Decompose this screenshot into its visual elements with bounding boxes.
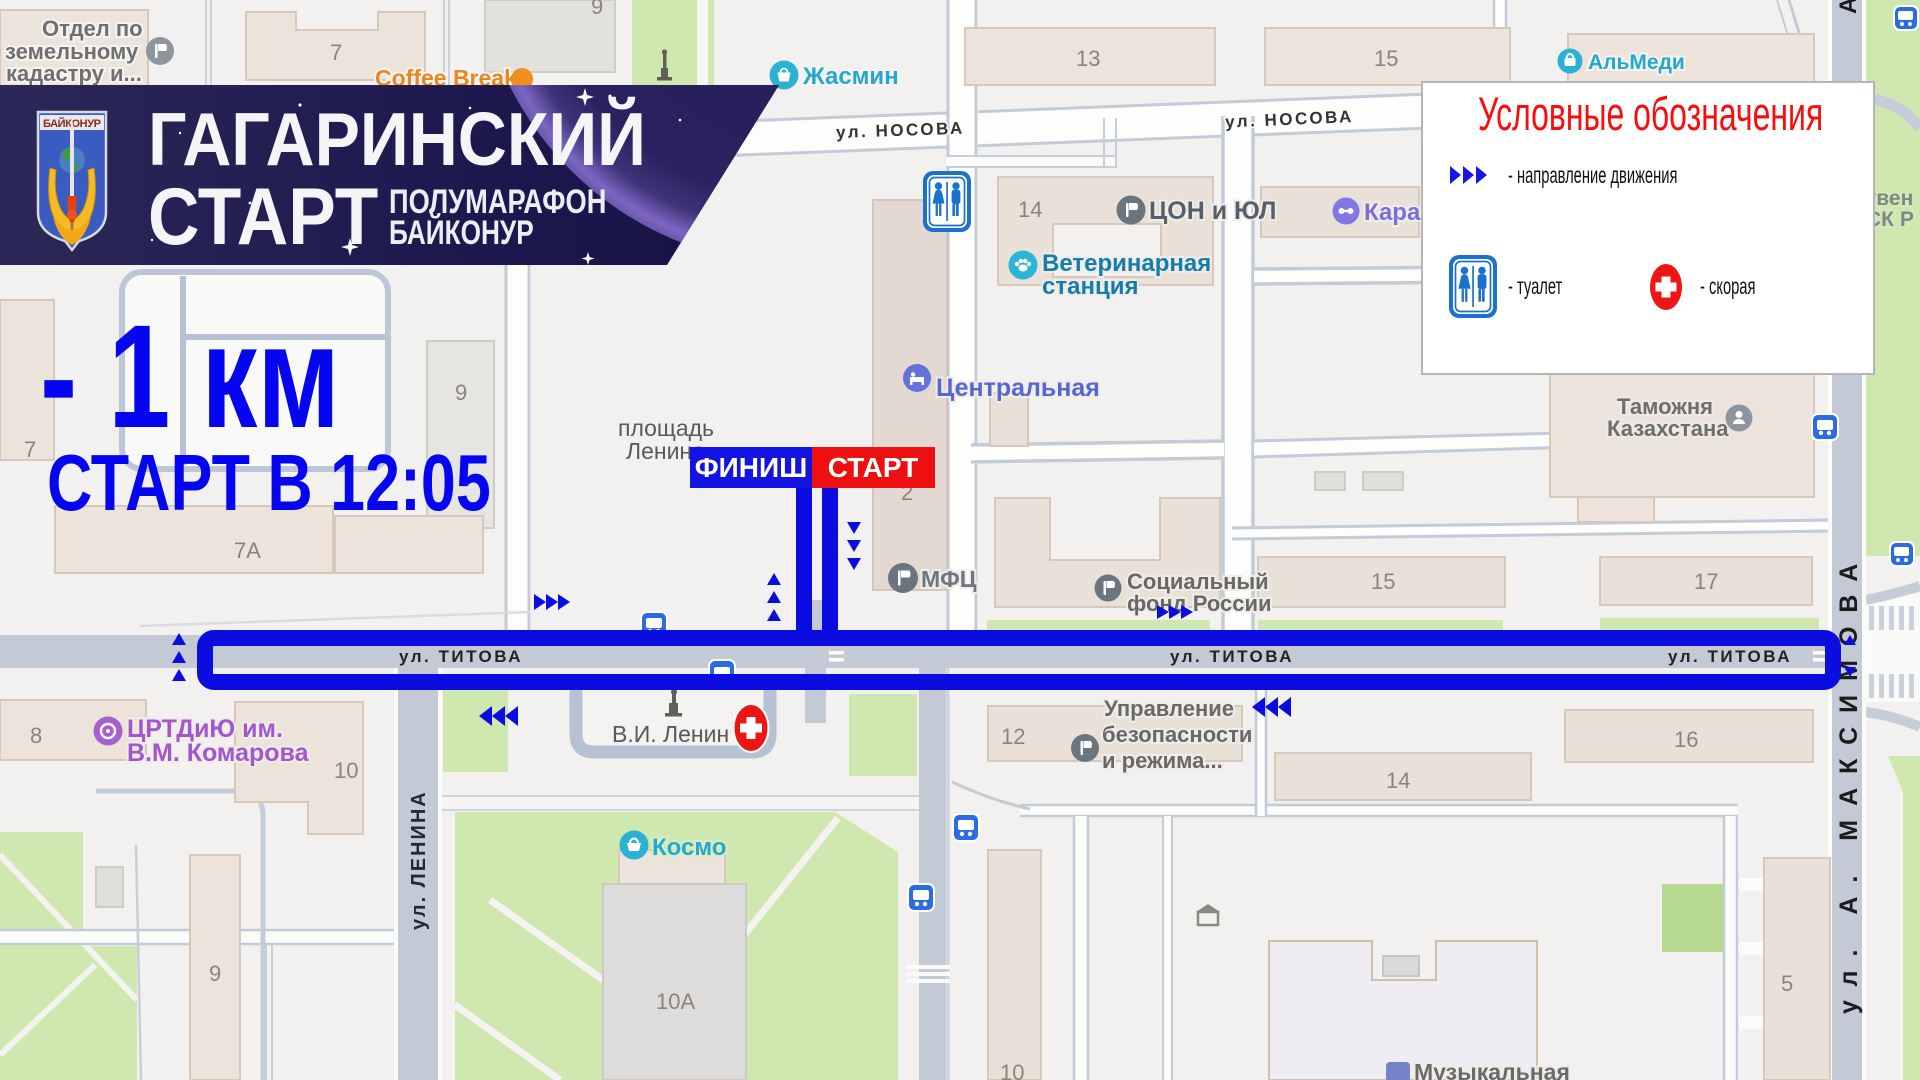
svg-text:Управление: Управление — [1104, 696, 1234, 721]
svg-text:СТАРТ В 12:05: СТАРТ В 12:05 — [47, 439, 491, 528]
svg-text:14: 14 — [1018, 197, 1042, 222]
svg-text:ФИНИШ: ФИНИШ — [695, 452, 808, 483]
svg-text:15: 15 — [1374, 46, 1398, 71]
svg-text:9: 9 — [591, 0, 603, 19]
svg-text:ул. ТИТОВА: ул. ТИТОВА — [1668, 647, 1792, 666]
svg-text:ул. ТИТОВА: ул. ТИТОВА — [1170, 647, 1294, 666]
svg-text:фонд России: фонд России — [1127, 591, 1272, 616]
svg-text:10: 10 — [1000, 1060, 1024, 1080]
svg-text:9: 9 — [209, 961, 221, 986]
svg-text:Казахстана: Казахстана — [1607, 416, 1729, 441]
svg-text:ул. ЛЕНИНА: ул. ЛЕНИНА — [408, 790, 430, 930]
svg-text:16: 16 — [1674, 727, 1698, 752]
svg-text:12: 12 — [1001, 724, 1025, 749]
svg-text:15: 15 — [1371, 569, 1395, 594]
svg-text:8: 8 — [30, 723, 42, 748]
svg-text:7: 7 — [330, 40, 342, 65]
svg-text:10: 10 — [334, 758, 358, 783]
svg-text:Центральная: Центральная — [936, 374, 1100, 402]
svg-text:14: 14 — [1386, 768, 1410, 793]
svg-text:7А: 7А — [234, 538, 261, 563]
svg-text:- 1 км: - 1 км — [40, 294, 340, 458]
svg-text:В.И. Ленин: В.И. Ленин — [612, 721, 729, 747]
svg-text:кадастру и...: кадастру и... — [6, 61, 142, 86]
svg-text:Условные обозначения: Условные обозначения — [1478, 88, 1823, 141]
svg-text:В.М. Комарова: В.М. Комарова — [127, 739, 310, 767]
svg-text:- туалет: - туалет — [1508, 275, 1562, 300]
svg-text:Жасмин: Жасмин — [802, 63, 899, 90]
svg-text:10А: 10А — [656, 989, 695, 1014]
svg-text:МФЦ: МФЦ — [921, 566, 977, 592]
svg-text:Отдел по: Отдел по — [42, 16, 143, 41]
svg-text:ул. А. МАКСИМОВА: ул. А. МАКСИМОВА — [1835, 550, 1863, 1014]
svg-text:13: 13 — [1076, 46, 1100, 71]
svg-text:Музыкальная: Музыкальная — [1414, 1059, 1570, 1080]
svg-text:ЦОН и ЮЛ: ЦОН и ЮЛ — [1149, 197, 1276, 225]
svg-text:безопасности: безопасности — [1102, 722, 1252, 747]
svg-text:ул. ТИТОВА: ул. ТИТОВА — [399, 647, 523, 666]
svg-text:А: А — [1835, 0, 1862, 14]
svg-text:9: 9 — [455, 380, 467, 405]
svg-text:- скорая: - скорая — [1700, 275, 1755, 300]
svg-text:- направление движения: - направление движения — [1508, 164, 1677, 189]
svg-text:17: 17 — [1694, 569, 1718, 594]
svg-text:АльМеди: АльМеди — [1588, 51, 1685, 74]
svg-text:ГАГАРИНСКИЙ: ГАГАРИНСКИЙ — [148, 96, 646, 182]
svg-text:станция: станция — [1042, 273, 1138, 300]
svg-text:БАЙКОНУР: БАЙКОНУР — [389, 211, 534, 252]
svg-text:Космо: Космо — [652, 834, 726, 861]
svg-text:СТАРТ: СТАРТ — [148, 172, 378, 262]
svg-text:СТАРТ: СТАРТ — [828, 452, 919, 483]
svg-text:и режима...: и режима... — [1102, 748, 1223, 773]
svg-text:5: 5 — [1781, 971, 1793, 996]
svg-text:7: 7 — [24, 437, 36, 462]
